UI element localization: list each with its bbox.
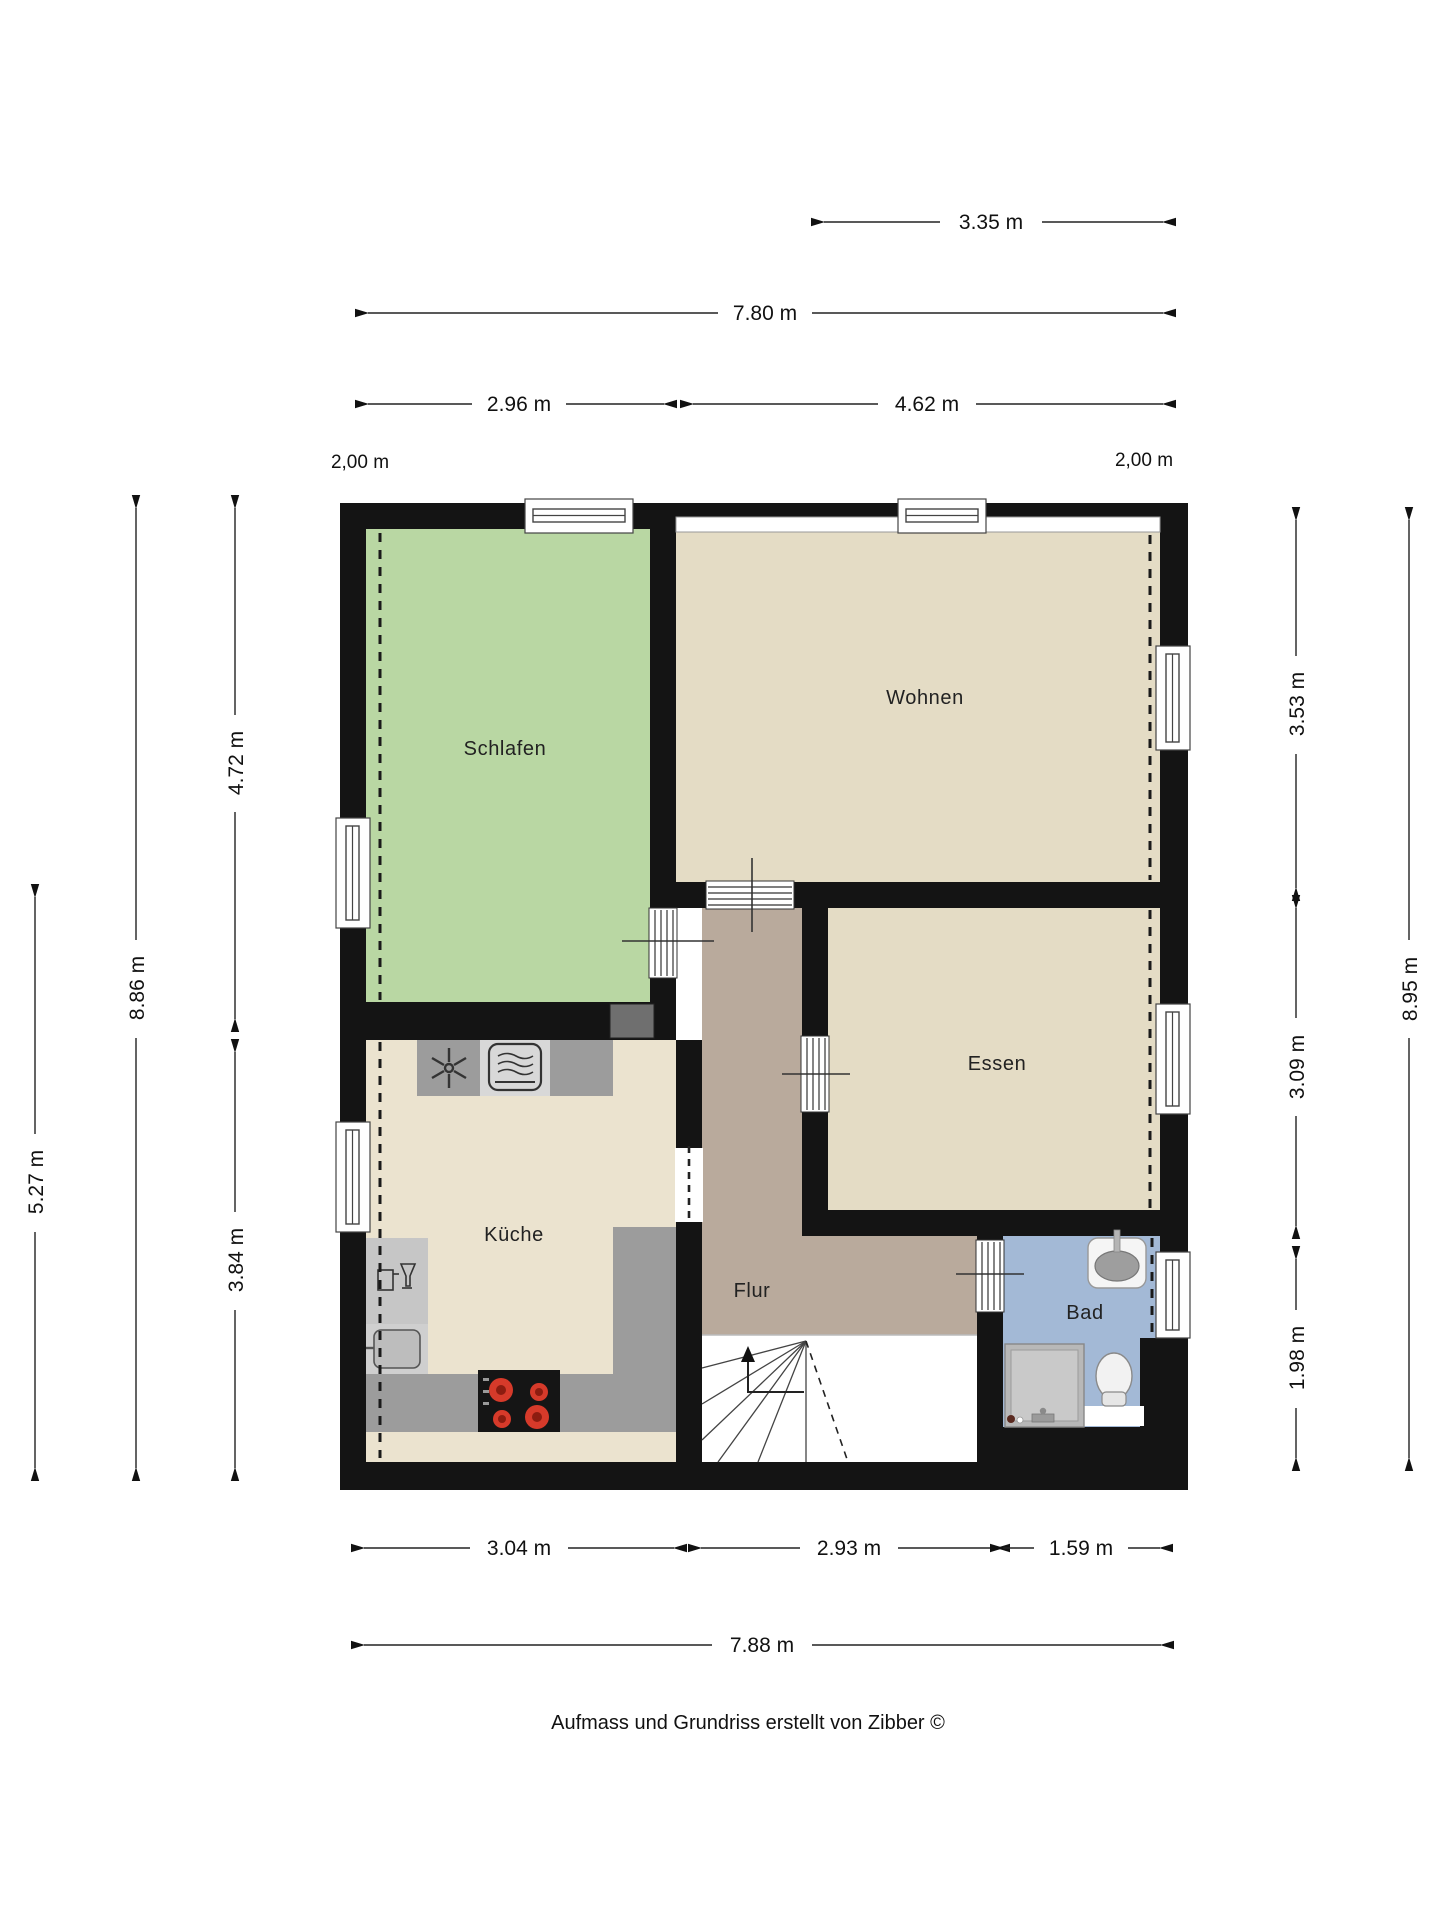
wall-kueche-flur-upper [676, 1040, 702, 1148]
toilet-icon [1096, 1353, 1132, 1406]
svg-text:4.62 m: 4.62 m [895, 393, 959, 416]
svg-text:2.96 m: 2.96 m [487, 393, 551, 416]
wall-schlafen-wohnen [650, 503, 676, 908]
wall-bottom [340, 1462, 1188, 1490]
window-kueche-left [336, 1122, 370, 1232]
window-wohnen-right [1156, 646, 1190, 750]
bathroom-sink-icon [1088, 1230, 1146, 1288]
dim-left-lower: 5.27 m [25, 897, 48, 1468]
cooktop-icon [478, 1370, 560, 1432]
dim-left-schlafen: 4.72 m [225, 508, 248, 1019]
dim-left-kueche: 3.84 m [225, 1052, 248, 1468]
wall-left [340, 503, 366, 1490]
window-schlafen-left [336, 818, 370, 928]
svg-text:4.72 m: 4.72 m [225, 731, 248, 795]
opening-kueche-flur [675, 1146, 703, 1224]
svg-text:5.27 m: 5.27 m [25, 1150, 48, 1214]
svg-text:3.84 m: 3.84 m [225, 1228, 248, 1292]
dim-bottom-bad: 1.59 m [1003, 1537, 1160, 1560]
bad-label: Bad [1066, 1302, 1103, 1324]
window-essen-right [1156, 1004, 1190, 1114]
svg-text:8.86 m: 8.86 m [126, 956, 149, 1020]
schlafen-label: Schlafen [464, 738, 547, 760]
dim-top-schlafen: 2.96 m [368, 393, 664, 416]
svg-text:3.53 m: 3.53 m [1286, 672, 1309, 736]
svg-text:1.98 m: 1.98 m [1286, 1326, 1309, 1390]
kueche-label: Küche [484, 1224, 544, 1246]
wall-bad-bottom-thick [977, 1427, 1188, 1462]
svg-text:8.95 m: 8.95 m [1399, 957, 1422, 1021]
svg-text:3.09 m: 3.09 m [1286, 1035, 1309, 1099]
dim-bottom-kueche: 3.04 m [364, 1537, 674, 1560]
flur-floor-main [702, 908, 802, 1335]
shaft-block [610, 1004, 654, 1038]
room-floors [366, 529, 1160, 1462]
wohnen-label: Wohnen [886, 687, 964, 709]
bad-window-sill [1076, 1406, 1144, 1426]
shower-icon [1005, 1344, 1084, 1427]
window-wohnen-top [898, 499, 986, 533]
flur-floor-lower [802, 1236, 977, 1335]
wall-essen-bottom [802, 1210, 1160, 1236]
dim-top-partial: 3.35 m [824, 211, 1163, 234]
stairwell-area [702, 1335, 977, 1462]
dim-right-essen: 3.09 m [1286, 908, 1309, 1226]
flur-label: Flur [734, 1280, 771, 1302]
window-schlafen-top [525, 499, 633, 533]
svg-text:3.35 m: 3.35 m [959, 211, 1023, 234]
svg-text:1.59 m: 1.59 m [1049, 1537, 1113, 1560]
dim-bottom-total: 7.88 m [364, 1634, 1161, 1657]
schlafen-floor [366, 529, 650, 1002]
counter-right-run [613, 1227, 676, 1374]
essen-label: Essen [968, 1053, 1027, 1075]
wall-kueche-flur-lower [676, 1222, 702, 1462]
svg-text:2.93 m: 2.93 m [817, 1537, 881, 1560]
dim-top-total: 7.80 m [368, 302, 1163, 325]
window-bad-right [1156, 1252, 1190, 1338]
dim-right-total: 8.95 m [1399, 520, 1422, 1458]
stairs [702, 1335, 977, 1462]
floorplan-page: Schlafen Wohnen Essen Küche Flur Bad 3.3… [0, 0, 1439, 1919]
svg-text:7.80 m: 7.80 m [733, 302, 797, 325]
dim-bottom-flur: 2.93 m [701, 1537, 997, 1560]
svg-text:3.04 m: 3.04 m [487, 1537, 551, 1560]
dim-left-total: 8.86 m [126, 508, 149, 1468]
dim-right-bad: 1.98 m [1286, 1259, 1309, 1458]
wall-stub-schlafen-door [650, 976, 676, 1004]
height-note-left: 2,00 m [331, 452, 389, 473]
height-note-right: 2,00 m [1115, 450, 1173, 471]
dishwasher-block [366, 1238, 428, 1324]
dim-top-wohnen: 4.62 m [693, 393, 1163, 416]
floorplan-drawing: Schlafen Wohnen Essen Küche Flur Bad 3.3… [0, 0, 1439, 1919]
svg-text:7.88 m: 7.88 m [730, 1634, 794, 1657]
credit-line: Aufmass und Grundriss erstellt von Zibbe… [551, 1712, 945, 1734]
dim-right-wohnen: 3.53 m [1286, 520, 1309, 888]
